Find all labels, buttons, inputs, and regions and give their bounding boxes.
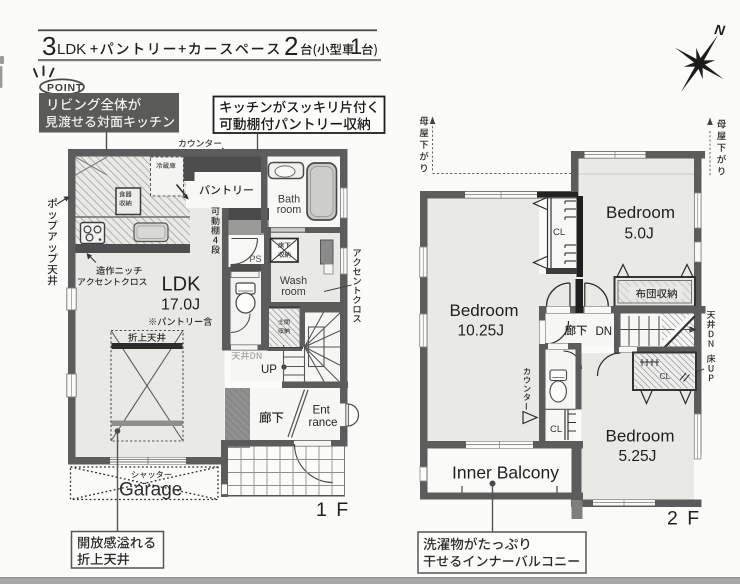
svg-text:1 F: 1 F (316, 499, 350, 521)
svg-text:room: room (281, 286, 306, 298)
svg-text:5.25J: 5.25J (619, 448, 657, 465)
svg-text:CL: CL (550, 424, 562, 435)
svg-text:Bedroom: Bedroom (606, 427, 675, 446)
svg-text:UP: UP (261, 364, 277, 376)
svg-text:17.0J: 17.0J (161, 297, 200, 314)
svg-text:5.0J: 5.0J (625, 226, 654, 243)
svg-text:Bedroom: Bedroom (450, 301, 519, 320)
svg-text:Ent: Ent (313, 404, 331, 417)
svg-text:room: room (277, 204, 302, 216)
svg-text:3: 3 (42, 31, 56, 61)
svg-text:LDK: LDK (57, 41, 86, 58)
svg-text:DN: DN (596, 326, 613, 338)
svg-text:LDK: LDK (162, 274, 202, 296)
svg-text:Bedroom: Bedroom (606, 203, 675, 222)
svg-text:2 F: 2 F (667, 508, 701, 530)
svg-text:Garage: Garage (119, 480, 182, 501)
svg-text:rance: rance (309, 416, 338, 429)
svg-text:10.25J: 10.25J (458, 323, 505, 340)
svg-text:2: 2 (284, 31, 298, 61)
svg-text:CL: CL (660, 371, 671, 381)
svg-text:CL: CL (553, 227, 565, 238)
svg-text:Inner Balcony: Inner Balcony (452, 463, 559, 483)
svg-text:POINT: POINT (47, 82, 83, 94)
svg-text:PS: PS (250, 254, 262, 264)
svg-text:1: 1 (350, 34, 362, 59)
